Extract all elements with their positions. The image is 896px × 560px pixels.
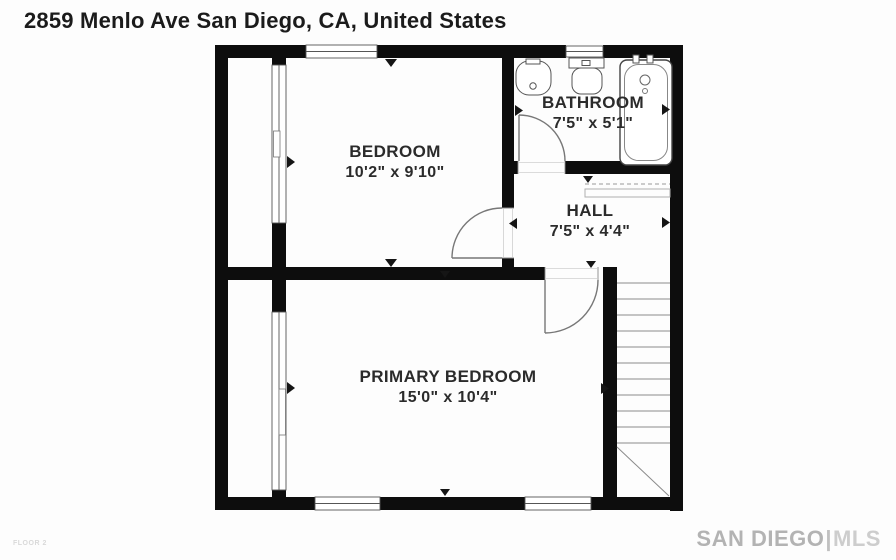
exterior-wall-top [215, 45, 306, 58]
window-icon [272, 65, 286, 223]
stair-landing-edge [585, 189, 670, 197]
window-wall-segment [272, 223, 286, 267]
door-swing-icon [452, 208, 502, 258]
room-label-bedroom: BEDROOM 10'2" x 9'10" [295, 141, 495, 183]
window-wall-segment [272, 58, 286, 65]
room-dimensions: 7'5" x 4'4" [515, 221, 665, 242]
mls-watermark: SAN DIEGO|MLS [696, 526, 881, 552]
exterior-wall-bottom [380, 497, 525, 510]
room-name: HALL [515, 200, 665, 221]
floor-number-label: FLOOR 2 [13, 540, 47, 547]
room-dimensions: 15'0" x 10'4" [327, 387, 569, 408]
room-name: PRIMARY BEDROOM [327, 366, 569, 387]
interior-wall-bathroom-bottom [502, 161, 518, 174]
window-icon [566, 46, 603, 57]
stair-treads [617, 283, 670, 443]
window-icon [306, 45, 377, 58]
room-label-primary-bedroom: PRIMARY BEDROOM 15'0" x 10'4" [327, 366, 569, 408]
interior-wall-divider [215, 267, 545, 280]
window-wall-segment [272, 280, 286, 312]
sink-icon [516, 59, 551, 95]
room-dimensions: 10'2" x 9'10" [295, 162, 495, 183]
floor-plan-page: 2859 Menlo Ave San Diego, CA, United Sta… [0, 0, 896, 560]
room-label-hall: HALL 7'5" x 4'4" [515, 200, 665, 242]
watermark-separator: | [824, 526, 833, 551]
window-icon [525, 497, 591, 510]
stair-break-line [617, 447, 669, 496]
window-wall-segment [272, 490, 286, 498]
room-name: BATHROOM [507, 92, 679, 113]
window-icon [315, 497, 380, 510]
exterior-wall-bottom [215, 497, 315, 510]
door-swing-icon [545, 280, 598, 333]
exterior-wall-top [377, 45, 566, 58]
floor-plan-drawing [0, 0, 896, 560]
interior-wall-bedroom-right [502, 258, 514, 267]
room-dimensions: 7'5" x 5'1" [507, 113, 679, 134]
room-name: BEDROOM [295, 141, 495, 162]
toilet-icon [569, 58, 604, 94]
watermark-suffix: MLS [833, 526, 881, 551]
window-icon [272, 312, 286, 490]
watermark-brand: SAN DIEGO [696, 526, 824, 551]
room-label-bathroom: BATHROOM 7'5" x 5'1" [507, 92, 679, 134]
